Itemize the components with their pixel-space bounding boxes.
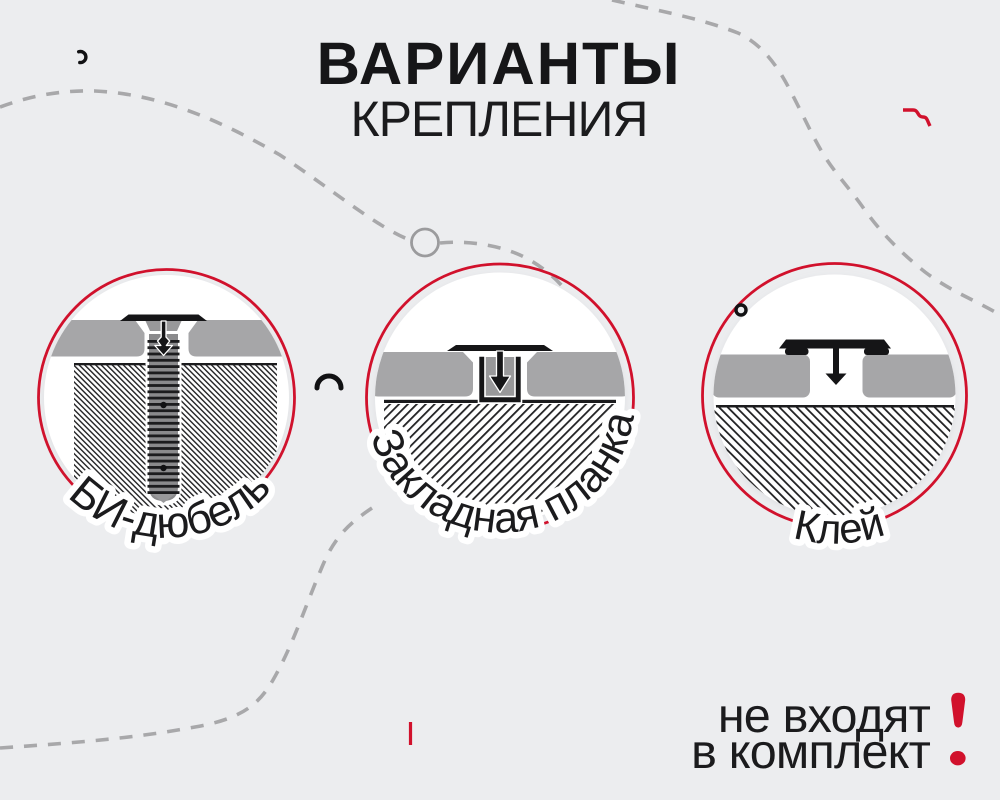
svg-text:КРЕПЛЕНИЯ: КРЕПЛЕНИЯ <box>350 91 647 147</box>
svg-text:ВАРИАНТЫ: ВАРИАНТЫ <box>317 30 682 97</box>
svg-text:в комплект: в комплект <box>691 725 930 779</box>
svg-text:Клей: Клей <box>789 498 889 555</box>
